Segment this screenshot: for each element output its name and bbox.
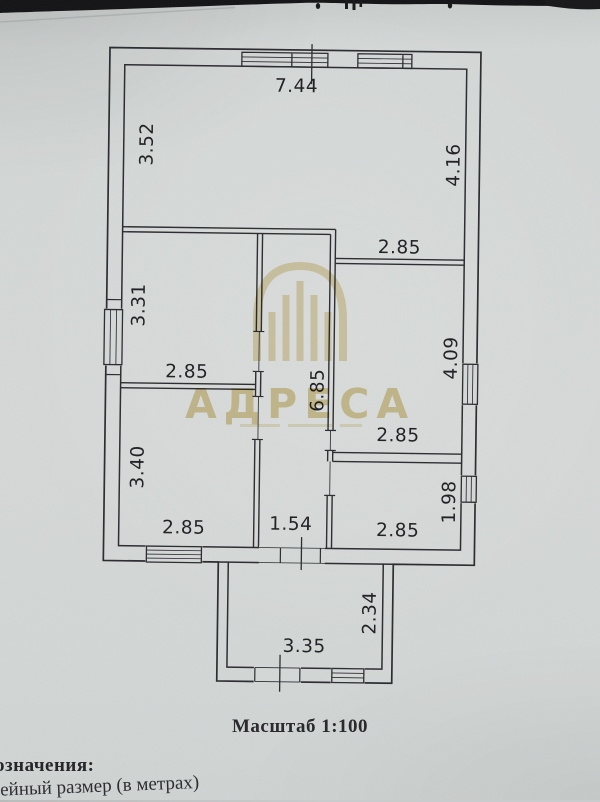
- interior-walls: [118, 227, 464, 550]
- dim-mid-left-room-depth: 3.31: [128, 283, 150, 326]
- window-top-left: [242, 52, 328, 67]
- dim-mid-right-room-depth: 4.09: [441, 336, 463, 379]
- dim-top-width: 7.44: [275, 76, 318, 98]
- dim-upper-left-depth: 3.52: [136, 122, 158, 165]
- dimension-labels: 7.44 3.52 4.16 2.85 3.31 2.85 6.85 4.09 …: [124, 74, 466, 659]
- window-right-lower: [460, 475, 477, 503]
- window-bottom-left: [145, 545, 202, 564]
- window-left: [103, 299, 124, 374]
- dim-lower-right-room-depth: 1.98: [439, 480, 461, 523]
- dim-porch-width: 3.35: [282, 636, 325, 658]
- dim-upper-right-depth: 4.16: [443, 143, 465, 186]
- door-openings: [254, 44, 332, 693]
- dim-upper-right-room-width: 2.85: [378, 237, 421, 259]
- scanned-page: { "document": { "scale_caption": "Масшта…: [0, 0, 600, 800]
- dim-hall-width: 1.54: [269, 514, 312, 536]
- window-top-right: [358, 54, 412, 69]
- dim-hall-length: 6.85: [307, 369, 329, 412]
- dim-mid-right-room-width: 2.85: [376, 425, 419, 447]
- dim-mid-left-room-width: 2.85: [165, 361, 208, 383]
- scale-caption: Масштаб 1:100: [0, 716, 600, 738]
- dim-lower-right-room-width: 2.85: [376, 520, 419, 542]
- floor-plan: 7.44 3.52 4.16 2.85 3.31 2.85 6.85 4.09 …: [0, 0, 600, 800]
- legend-heading-fragment: означения:: [0, 755, 94, 777]
- outer-walls: [102, 48, 481, 685]
- window-right-upper: [461, 363, 479, 405]
- dim-lower-left-room-depth: 3.40: [127, 445, 149, 488]
- dim-porch-depth: 2.34: [359, 591, 381, 634]
- dim-lower-left-room-width: 2.85: [162, 517, 205, 539]
- window-porch: [331, 667, 365, 683]
